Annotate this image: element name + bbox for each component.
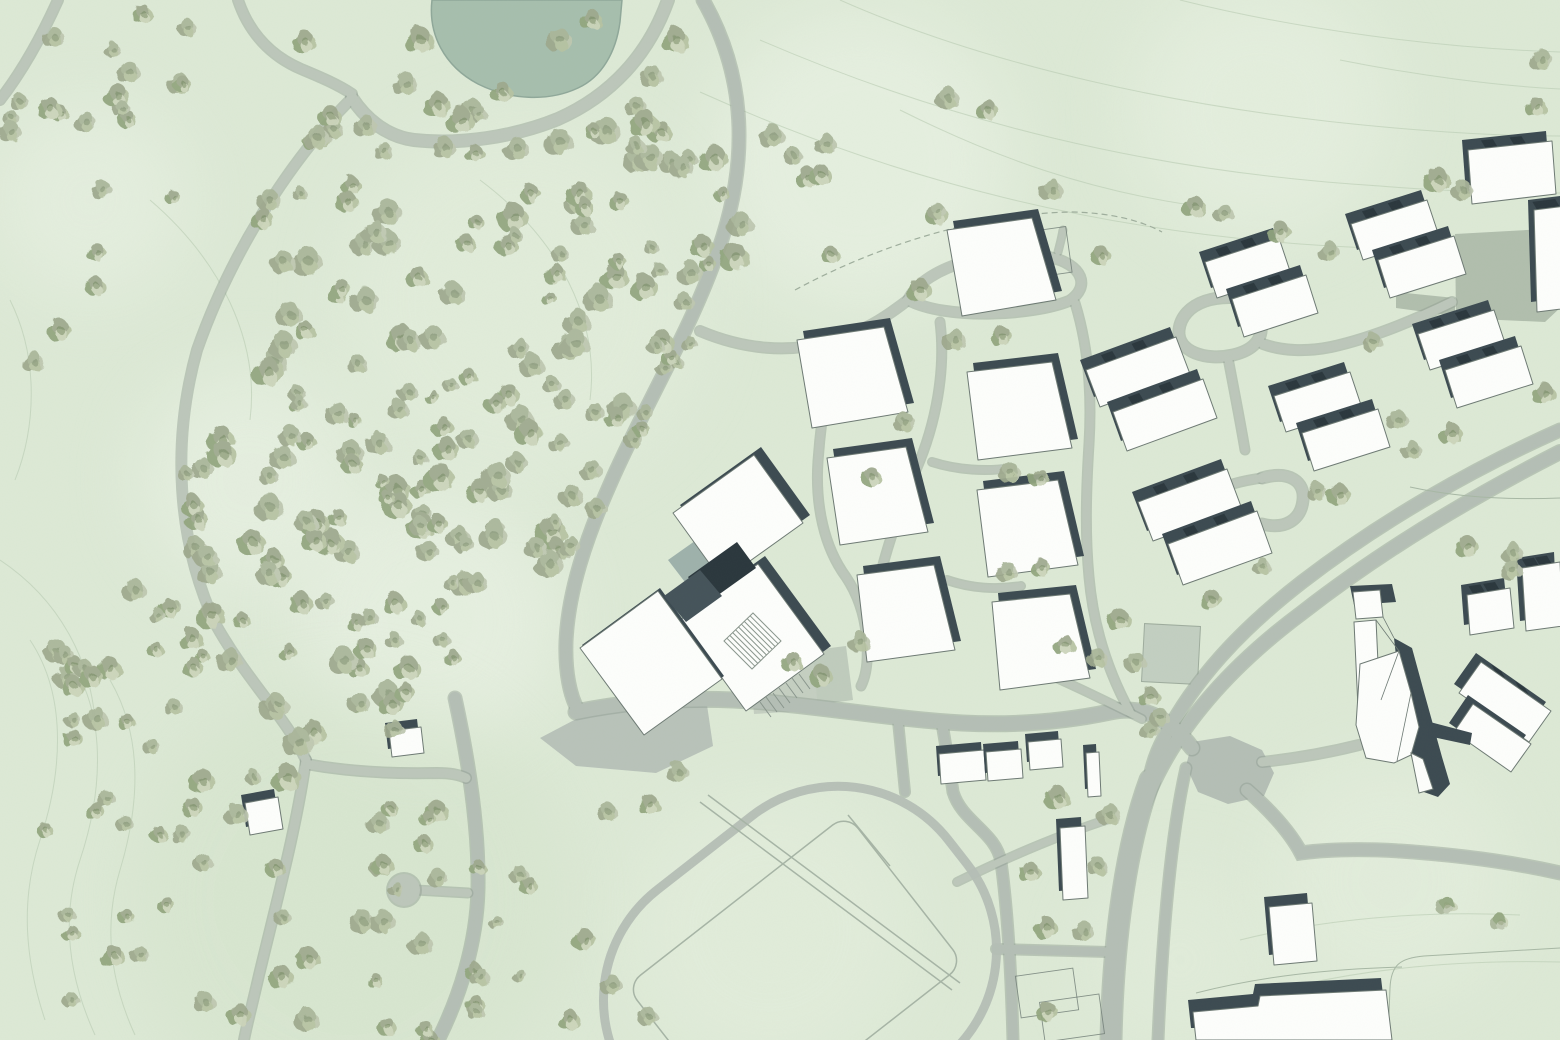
site-plan-canvas [0, 0, 1560, 1040]
paper-grain-overlay [0, 0, 1560, 1040]
site-plan-map [0, 0, 1560, 1040]
